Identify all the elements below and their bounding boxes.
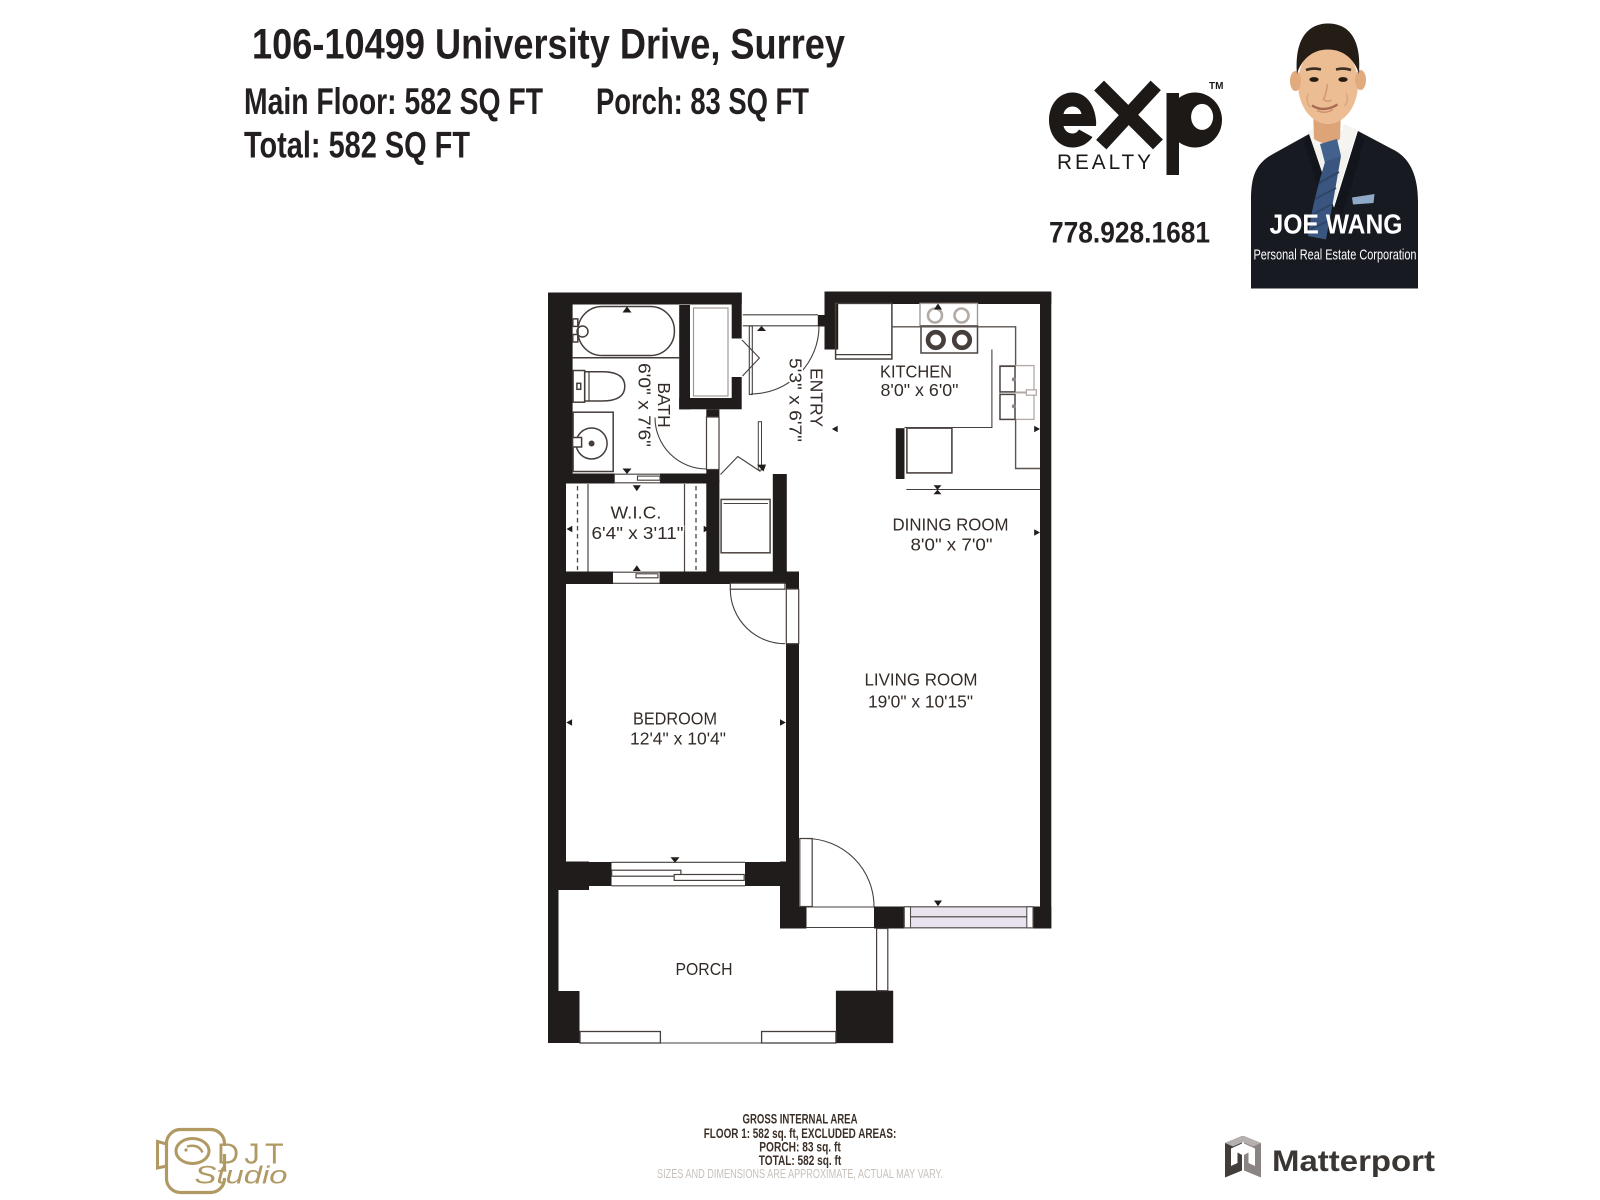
svg-text:KITCHEN: KITCHEN [880, 361, 952, 381]
svg-text:LIVING ROOM: LIVING ROOM [865, 670, 978, 690]
svg-text:8'0" x 7'0": 8'0" x 7'0" [911, 535, 993, 555]
svg-text:Total: 582 SQ FT: Total: 582 SQ FT [244, 125, 470, 166]
svg-text:GROSS INTERNAL AREA: GROSS INTERNAL AREA [743, 1112, 858, 1127]
svg-text:12'4" x 10'4": 12'4" x 10'4" [630, 729, 726, 749]
svg-text:SIZES AND DIMENSIONS ARE APPRO: SIZES AND DIMENSIONS ARE APPROXIMATE, AC… [657, 1166, 943, 1181]
svg-text:8'0" x 6'0": 8'0" x 6'0" [881, 380, 959, 400]
svg-text:BATH: BATH [654, 382, 674, 427]
svg-text:REALTY: REALTY [1057, 151, 1154, 174]
svg-text:Porch: 83 SQ FT: Porch: 83 SQ FT [596, 81, 809, 122]
svg-text:778.928.1681: 778.928.1681 [1049, 217, 1210, 250]
svg-text:Matterport: Matterport [1272, 1145, 1435, 1178]
svg-text:6'0" x 7'6": 6'0" x 7'6" [635, 363, 655, 447]
svg-text:DINING ROOM: DINING ROOM [893, 515, 1009, 535]
svg-text:6'4" x 3'11": 6'4" x 3'11" [592, 523, 684, 543]
svg-text:Studio: Studio [195, 1162, 288, 1190]
svg-text:106-10499 University Drive, Su: 106-10499 University Drive, Surrey [252, 21, 845, 69]
svg-text:5'3" x 6'7": 5'3" x 6'7" [786, 358, 806, 442]
svg-text:Personal Real Estate Corporati: Personal Real Estate Corporation [1254, 247, 1417, 264]
svg-text:BEDROOM: BEDROOM [633, 709, 717, 729]
svg-text:TM: TM [1209, 81, 1223, 92]
svg-text:W.I.C.: W.I.C. [611, 503, 662, 523]
svg-text:ENTRY: ENTRY [807, 368, 827, 427]
svg-text:JOE WANG: JOE WANG [1270, 209, 1403, 240]
svg-text:19'0" x 10'15": 19'0" x 10'15" [868, 692, 973, 712]
svg-text:Main Floor: 582 SQ FT: Main Floor: 582 SQ FT [244, 81, 543, 122]
svg-text:PORCH: PORCH [676, 959, 733, 979]
